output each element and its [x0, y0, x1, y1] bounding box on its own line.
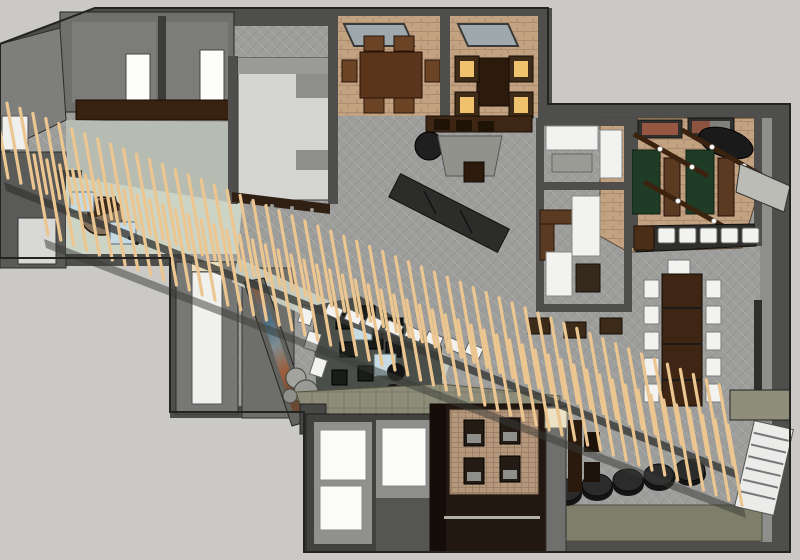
floor-highlight	[444, 516, 540, 519]
kitchen-fixture	[296, 150, 330, 170]
white-panel	[600, 130, 622, 178]
kitchen-east-wall	[328, 12, 338, 204]
dining-table	[360, 52, 422, 98]
northeast-wall	[548, 104, 790, 118]
desk	[540, 210, 576, 224]
cabinet	[568, 420, 582, 492]
white-panel	[382, 428, 426, 486]
room-private-dining	[338, 12, 450, 118]
area-rug	[450, 410, 538, 494]
chair	[364, 36, 384, 51]
room-booth-dining	[450, 16, 538, 118]
dining-chair	[706, 332, 721, 350]
head-chair	[668, 260, 690, 274]
dining-chair	[706, 306, 721, 324]
restroom-2-lower	[376, 498, 430, 552]
spotlight	[310, 208, 314, 212]
bar-stool	[742, 228, 759, 243]
chair	[394, 98, 414, 113]
corridor-floor	[192, 272, 222, 404]
kitchen-fixture	[296, 74, 330, 98]
door-panel	[200, 50, 224, 100]
chair	[342, 60, 357, 82]
white-sofa	[572, 196, 600, 256]
planter-box	[434, 119, 450, 130]
kitchen-west-wall	[228, 56, 238, 204]
office-wall	[536, 118, 632, 126]
bar-stool	[679, 228, 696, 243]
white-seat	[546, 252, 572, 296]
dining-divider-wall	[440, 12, 450, 118]
dining-chair	[644, 306, 659, 324]
lit-cushion	[514, 61, 528, 77]
dark-chair	[584, 462, 600, 482]
dining-chair	[644, 280, 659, 298]
light	[710, 145, 715, 150]
picture-art	[642, 123, 678, 135]
bar-stool	[658, 228, 675, 243]
office-divider	[536, 182, 632, 190]
north-spur-wall	[538, 8, 552, 118]
booth-table	[477, 58, 509, 106]
wood-bench	[664, 158, 680, 216]
dark-chair	[576, 264, 600, 292]
stool	[600, 318, 622, 334]
gray-counter	[552, 154, 592, 172]
chair-seat	[503, 432, 517, 441]
wood-counter	[76, 100, 236, 120]
lit-cushion	[514, 97, 528, 113]
chair-seat	[467, 472, 481, 481]
floor-plan-canvas: 3D rendered interior floor plan, top-dow…	[0, 0, 800, 560]
bar-stool	[721, 228, 738, 243]
bar-stool	[700, 228, 717, 243]
dining-chair	[706, 280, 721, 298]
office-wall	[624, 118, 632, 312]
planter-box	[478, 121, 494, 132]
skylight	[458, 24, 518, 46]
floor-plan-render: 3D rendered interior floor plan, top-dow…	[0, 0, 800, 560]
chair	[364, 98, 384, 113]
chair	[394, 36, 414, 51]
rock	[283, 389, 297, 403]
bar-cabinet	[634, 226, 654, 250]
black-chair	[332, 370, 347, 385]
white-counter	[546, 126, 598, 150]
wood-bench	[718, 158, 734, 216]
office-wall	[536, 304, 632, 312]
chair-seat	[503, 470, 517, 479]
green-table	[686, 150, 714, 214]
cross-beam	[730, 390, 790, 420]
light	[712, 219, 717, 224]
light	[690, 165, 695, 170]
dining-chair	[644, 332, 659, 350]
lit-cushion	[460, 61, 474, 77]
chair-seat	[467, 434, 481, 443]
light	[658, 147, 663, 152]
light	[676, 199, 681, 204]
chair	[425, 60, 440, 82]
bar-stool-row	[658, 228, 759, 243]
white-panel	[320, 430, 366, 480]
spotlight	[290, 206, 294, 210]
planter-box	[456, 120, 472, 131]
kitchen-north-fixture	[238, 58, 330, 74]
service-stand	[464, 162, 484, 182]
white-panel	[320, 486, 362, 530]
room-restrooms	[306, 414, 436, 552]
spotlight	[270, 204, 274, 208]
dining-chair	[706, 358, 721, 376]
office-divider-wall	[158, 16, 166, 104]
lit-cushion	[460, 97, 474, 113]
espresso-west-band	[430, 404, 446, 552]
door-panel	[126, 54, 150, 100]
